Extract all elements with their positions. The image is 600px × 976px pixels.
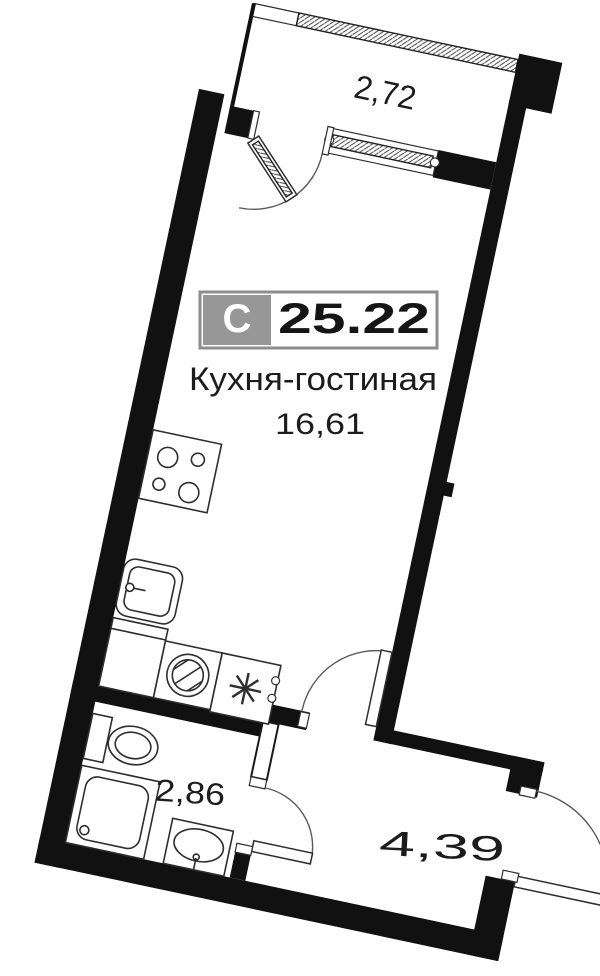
total-area-value: 25.22 [278, 295, 430, 343]
kitchen-sink-icon [114, 557, 185, 626]
unit-type-letter: С [223, 297, 252, 341]
floor-plan: 2,72 С 25.22 Кухня-гостиная 16,61 2,86 4… [0, 0, 600, 976]
stove-icon [139, 430, 222, 513]
main-room-area: 16,61 [275, 408, 365, 441]
main-room-label: Кухня-гостиная [189, 361, 437, 397]
hallway-area: 4,39 [378, 824, 506, 870]
shower-icon [65, 765, 160, 859]
area-badge: С 25.22 [200, 292, 437, 348]
faucet-icon [125, 583, 134, 592]
bathroom-area: 2,86 [154, 773, 226, 813]
